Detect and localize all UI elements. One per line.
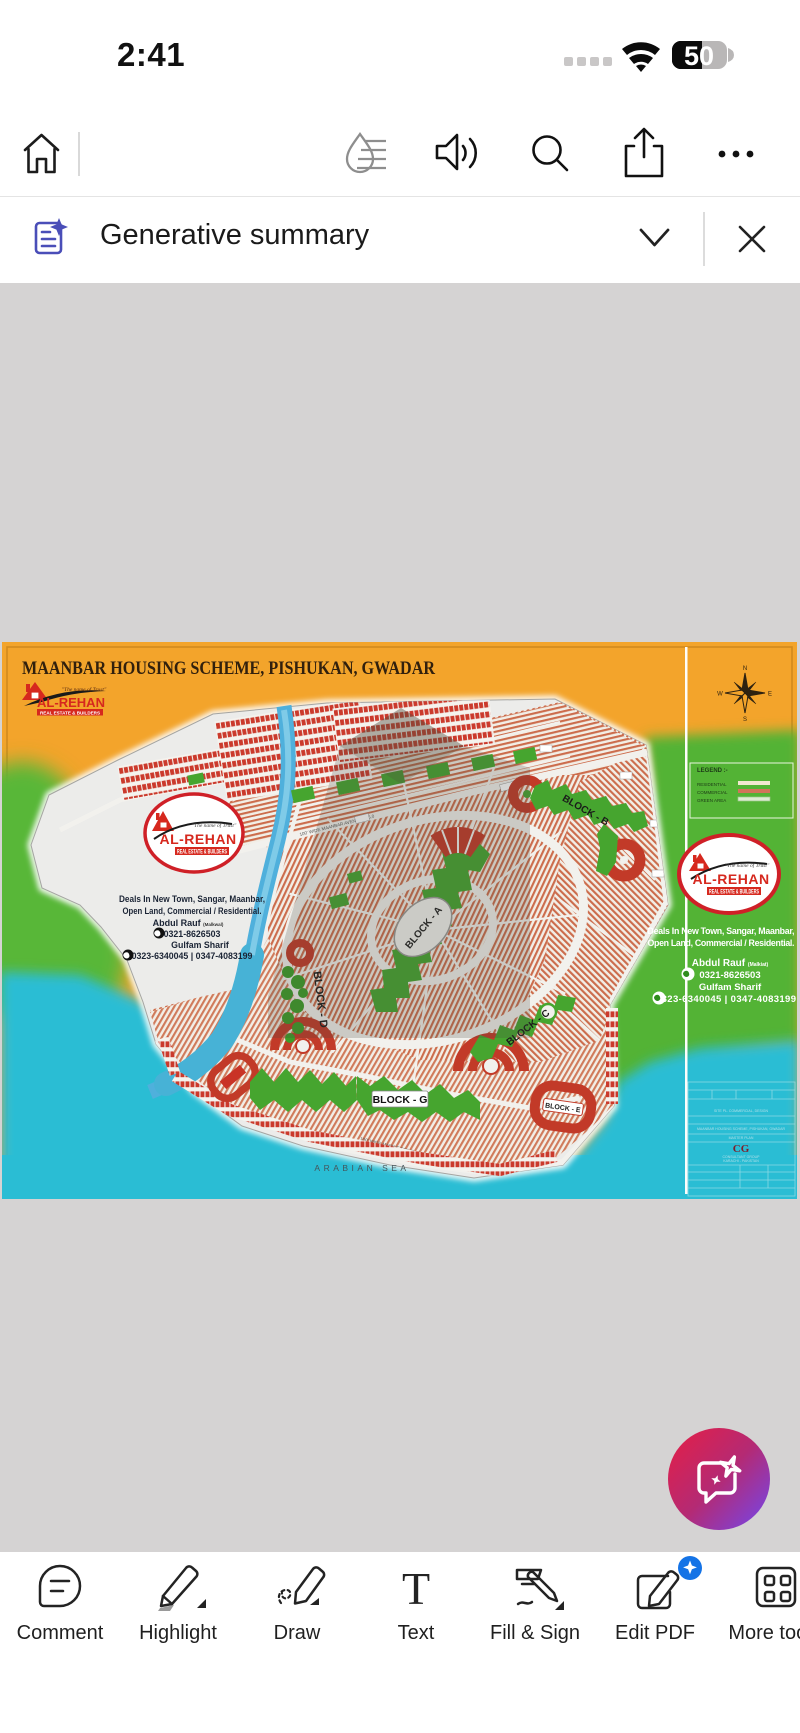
svg-text:"The name of Trust": "The name of Trust" (725, 862, 770, 869)
svg-text:KARACHI - PAKISTAN: KARACHI - PAKISTAN (723, 1159, 759, 1163)
svg-text:Gulfam Sharif: Gulfam Sharif (699, 982, 762, 993)
svg-text:GREEN AREA: GREEN AREA (697, 798, 726, 803)
svg-text:"The name of Trust": "The name of Trust" (62, 686, 107, 693)
svg-text:T: T (402, 1563, 430, 1614)
svg-text:REAL ESTATE & BUILDERS: REAL ESTATE & BUILDERS (40, 711, 101, 717)
svg-text:AL-REHAN: AL-REHAN (159, 831, 236, 847)
svg-text:CG: CG (733, 1143, 750, 1155)
svg-text:REAL ESTATE & BUILDERS: REAL ESTATE & BUILDERS (177, 850, 227, 856)
svg-text:Open Land, Commercial / Reside: Open Land, Commercial / Residential. (648, 938, 795, 948)
svg-text:COMMERCIAL: COMMERCIAL (697, 790, 728, 795)
svg-text:SITE PL. COMMERCIAL, DESIGN: SITE PL. COMMERCIAL, DESIGN (714, 1109, 769, 1113)
svg-text:50: 50 (684, 41, 714, 71)
svg-text:REAL ESTATE & BUILDERS: REAL ESTATE & BUILDERS (709, 890, 759, 896)
svg-text:LEGEND :-: LEGEND :- (697, 768, 728, 774)
svg-text:0321-8626503: 0321-8626503 (164, 929, 221, 939)
svg-text:Deals In New Town, Sangar, Maa: Deals In New Town, Sangar, Maanbar, (119, 894, 265, 905)
svg-text:S: S (743, 717, 747, 723)
svg-text:MAANBAR HOUSING SCHEME, PISHUK: MAANBAR HOUSING SCHEME, PISHUKAN, GWADAR (697, 1127, 785, 1131)
svg-text:Open Land, Commercial / Reside: Open Land, Commercial / Residential. (123, 906, 262, 917)
svg-text:0323-6340045 | 0347-4083199: 0323-6340045 | 0347-4083199 (132, 951, 253, 961)
svg-text:AL-REHAN: AL-REHAN (37, 695, 105, 710)
svg-text:MAANBAR HOUSING SCHEME, PISHUK: MAANBAR HOUSING SCHEME, PISHUKAN, GWADAR (22, 659, 436, 679)
svg-text:AL-REHAN: AL-REHAN (692, 871, 769, 887)
svg-text:0323-6340045 | 0347-4083199: 0323-6340045 | 0347-4083199 (656, 994, 796, 1005)
svg-text:"The name of Trust": "The name of Trust" (192, 822, 237, 829)
svg-text:MASTER PLAN: MASTER PLAN (729, 1136, 754, 1140)
svg-text:0321-8626503: 0321-8626503 (699, 970, 760, 981)
svg-text:Deals In New Town, Sangar, Maa: Deals In New Town, Sangar, Maanbar, (648, 926, 795, 936)
svg-text:N: N (743, 666, 747, 672)
svg-text:ARABIAN SEA: ARABIAN SEA (314, 1163, 409, 1173)
svg-text:BLOCK - G: BLOCK - G (373, 1094, 428, 1106)
svg-text:E: E (768, 692, 772, 698)
svg-text:RESIDENTIAL: RESIDENTIAL (697, 782, 727, 787)
svg-text:Gulfam Sharif: Gulfam Sharif (171, 940, 229, 950)
svg-text:W: W (717, 692, 723, 698)
